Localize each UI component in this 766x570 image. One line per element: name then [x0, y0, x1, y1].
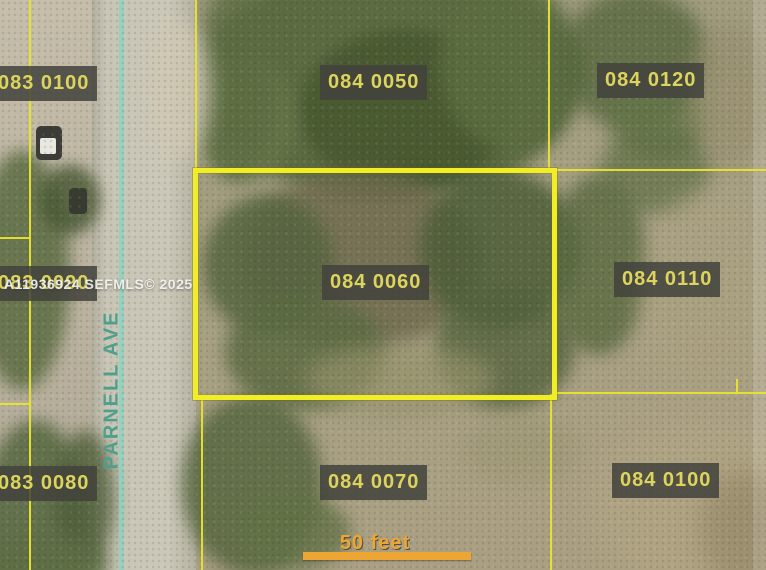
scale-bar: [303, 552, 471, 560]
parcel-boundary-line: [201, 396, 203, 570]
parcel-label: 084 0110: [614, 262, 720, 297]
vegetation-patch: [460, 415, 580, 485]
parcel-boundary-line: [548, 0, 550, 171]
shed: [69, 188, 87, 214]
vegetation-patch: [150, 20, 210, 160]
parcel-label: 084 0100: [612, 463, 719, 498]
parcel-boundary-line: [550, 394, 552, 570]
parcel-boundary-line: [736, 379, 738, 394]
parcel-label: 084 0120: [597, 63, 704, 98]
watermark: A11936924 SEFMLS© 2025: [4, 276, 193, 292]
parcel-label: 084 0050: [320, 65, 427, 100]
vehicle-roof: [40, 138, 56, 154]
parcel-label: 083 0100: [0, 66, 97, 101]
parcel-label: 083 0080: [0, 466, 97, 501]
street-label: PARNELL AVE: [101, 310, 124, 469]
parcel-boundary-line: [0, 237, 30, 239]
parcel-boundary-line: [0, 403, 31, 405]
parcel-label-highlighted: 084 0060: [322, 265, 429, 300]
parcel-label: 084 0070: [320, 465, 427, 500]
parcel-boundary-line: [553, 392, 766, 394]
parcel-boundary-line: [195, 0, 197, 172]
parcel-boundary-line: [553, 169, 766, 171]
aerial-parcel-map: 083 0100 084 0050 084 0120 083 0090 084 …: [0, 0, 766, 570]
imagery-seam: [753, 0, 766, 570]
